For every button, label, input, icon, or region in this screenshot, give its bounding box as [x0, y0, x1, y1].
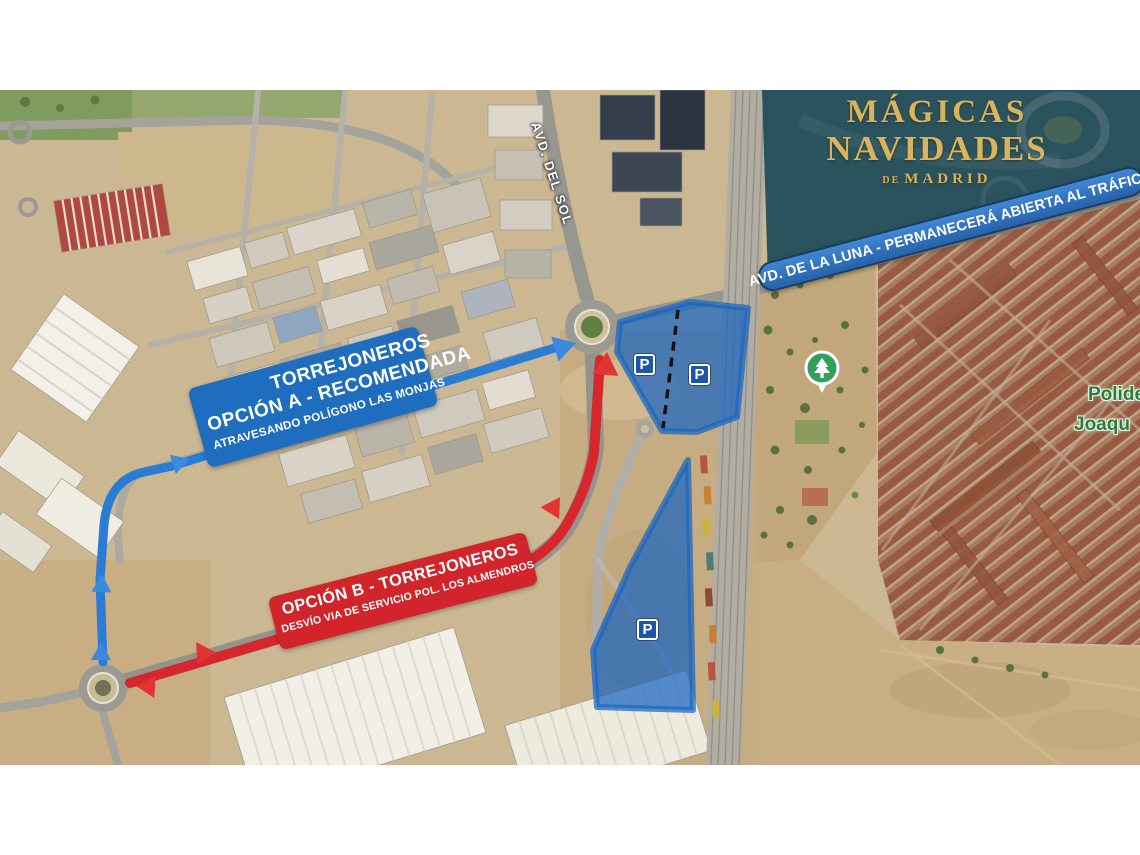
event-logo: MÁGICAS NAVIDADES DEMADRID [822, 96, 1052, 187]
logo-line-magicas: MÁGICAS [822, 96, 1052, 129]
logo-line-navidades: NAVIDADES [822, 131, 1052, 166]
parking-badge-icon: P [689, 364, 710, 385]
logo-de: DE [882, 175, 900, 186]
place-label-line1: Polide [1074, 380, 1140, 410]
roundabout-southwest [79, 664, 127, 712]
place-label-line2: Joaqu [1074, 410, 1140, 440]
map-place-label: Polide Joaqu [1074, 380, 1140, 441]
parking-badge-icon: P [637, 619, 658, 640]
page: { "logo": { "title_line1": "MÁGICAS", "t… [0, 0, 1140, 855]
logo-subtitle: DEMADRID [822, 171, 1052, 187]
parking-badge-icon: P [634, 354, 655, 375]
map-graphics [0, 90, 1140, 765]
logo-madrid: MADRID [904, 171, 991, 187]
satellite-map: MÁGICAS NAVIDADES DEMADRID AVD. DE LA LU… [0, 90, 1140, 765]
